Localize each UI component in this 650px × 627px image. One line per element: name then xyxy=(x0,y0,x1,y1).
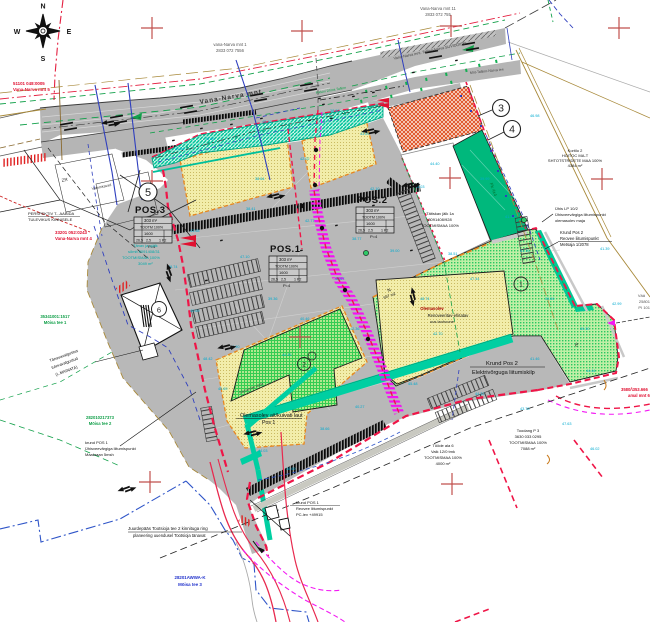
svg-text:S: S xyxy=(41,56,46,63)
svg-text:E: E xyxy=(67,29,72,36)
svg-text:TOOTM 100%: TOOTM 100% xyxy=(275,265,299,269)
svg-text:38.41: 38.41 xyxy=(246,207,256,211)
svg-text:4: 4 xyxy=(509,124,515,136)
svg-text:47.63: 47.63 xyxy=(562,422,572,426)
svg-text:2: 2 xyxy=(302,362,306,369)
svg-text:Olemasolev ait/kuivati laut: Olemasolev ait/kuivati laut xyxy=(240,413,303,419)
svg-text:44.40: 44.40 xyxy=(430,162,440,166)
svg-text:2833 072 755: 2833 072 755 xyxy=(425,12,451,17)
svg-text:40.27: 40.27 xyxy=(355,405,365,409)
svg-text:Vana-Narva mnt 11: Vana-Narva mnt 11 xyxy=(420,6,456,11)
svg-text:Elektrivõrguga liitumiskilp: Elektrivõrguga liitumiskilp xyxy=(472,370,535,376)
svg-text:1600: 1600 xyxy=(366,221,376,226)
svg-text:TULEVIKUS KINNISELE: TULEVIKUS KINNISELE xyxy=(28,217,73,222)
svg-text:48.74: 48.74 xyxy=(420,297,430,301)
svg-text:amal mnt 6: amal mnt 6 xyxy=(628,393,650,398)
svg-text:Pos 1: Pos 1 xyxy=(262,420,275,426)
svg-text:Krund Pos 2: Krund Pos 2 xyxy=(486,361,518,367)
svg-text:2833 072 7556: 2833 072 7556 xyxy=(216,48,245,53)
svg-text:Reovee liitumispunkt: Reovee liitumispunkt xyxy=(560,236,599,241)
svg-text:8091408/928: 8091408/928 xyxy=(428,217,452,222)
svg-text:44.03: 44.03 xyxy=(258,449,268,453)
svg-text:41.56: 41.56 xyxy=(175,147,185,151)
svg-text:planeering uuendusel Tootsioja: planeering uuendusel Tootsioja tänavat xyxy=(133,533,206,538)
svg-text:TOOTMISMAA 100%: TOOTMISMAA 100% xyxy=(421,223,459,228)
svg-text:51101 048:0005: 51101 048:0005 xyxy=(13,81,45,86)
svg-text:TOOTMISMAA 100%: TOOTMISMAA 100% xyxy=(509,440,547,445)
svg-text:1 P2: 1 P2 xyxy=(294,278,301,282)
svg-text:39.59: 39.59 xyxy=(545,297,555,301)
svg-text:2,5: 2,5 xyxy=(146,239,151,243)
svg-text:26,5: 26,5 xyxy=(136,239,143,243)
svg-text:38.51: 38.51 xyxy=(448,252,458,256)
svg-text:3: 3 xyxy=(498,103,504,115)
svg-text:45.16: 45.16 xyxy=(262,120,272,124)
svg-text:38.80: 38.80 xyxy=(330,109,340,113)
svg-text:45.69: 45.69 xyxy=(218,387,228,391)
svg-text:3630 033 0295: 3630 033 0295 xyxy=(515,434,542,439)
svg-text:47.44: 47.44 xyxy=(470,277,480,281)
svg-text:26,5: 26,5 xyxy=(271,278,278,282)
svg-text:26,5: 26,5 xyxy=(358,229,365,233)
svg-text:PC-lev +49915: PC-lev +49915 xyxy=(296,512,323,517)
svg-text:45.48: 45.48 xyxy=(408,382,418,386)
svg-text:Ühisveevärgiga liitumispunkt: Ühisveevärgiga liitumispunkt xyxy=(85,446,137,451)
svg-text:olemasolev maja: olemasolev maja xyxy=(555,218,586,223)
svg-text:39.99: 39.99 xyxy=(480,177,490,181)
svg-text:282010217373: 282010217373 xyxy=(86,415,115,420)
svg-text:5: 5 xyxy=(145,187,151,199)
svg-text:TOOTMISMAA 100%: TOOTMISMAA 100% xyxy=(424,455,462,460)
svg-text:Juurdepääs Tootsioja tee 2 kin: Juurdepääs Tootsioja tee 2 kinnituga rin… xyxy=(128,526,208,531)
svg-text:1: 1 xyxy=(519,282,523,289)
svg-text:43.58: 43.58 xyxy=(190,229,200,233)
svg-text:N: N xyxy=(40,4,45,11)
svg-text:3580/\353.666: 3580/\353.666 xyxy=(621,387,648,392)
svg-text:25801: 25801 xyxy=(639,299,650,304)
svg-text:uus laohoone: uus laohoone xyxy=(430,319,455,324)
svg-text:Möisa tee 2: Möisa tee 2 xyxy=(89,421,112,426)
svg-text:42.99: 42.99 xyxy=(612,302,622,306)
svg-text:Krund Pos 2: Krund Pos 2 xyxy=(560,230,584,235)
svg-text:6: 6 xyxy=(157,305,161,314)
svg-text:38.66: 38.66 xyxy=(320,427,330,431)
svg-text:47.10: 47.10 xyxy=(240,255,250,259)
svg-text:4384 m²: 4384 m² xyxy=(568,163,583,168)
svg-text:42.36: 42.36 xyxy=(350,327,360,331)
svg-text:Tööde ala 6: Tööde ala 6 xyxy=(432,443,454,448)
svg-text:PI 101: PI 101 xyxy=(638,305,650,310)
svg-text:TOOTM 100%: TOOTM 100% xyxy=(362,216,386,220)
svg-text:Maakraan 5msh: Maakraan 5msh xyxy=(85,452,114,457)
svg-text:40.69: 40.69 xyxy=(190,309,200,313)
svg-text:42.10: 42.10 xyxy=(370,187,380,191)
svg-text:Toodang P 3: Toodang P 3 xyxy=(517,428,540,433)
svg-text:Ühis LP 10/2: Ühis LP 10/2 xyxy=(555,206,579,211)
svg-text:44.44: 44.44 xyxy=(586,369,596,373)
svg-text:1600: 1600 xyxy=(144,231,154,236)
svg-text:P=4: P=4 xyxy=(283,283,291,288)
svg-text:vana-Narva mnt 1: vana-Narva mnt 1 xyxy=(213,42,247,47)
svg-text:POS.1: POS.1 xyxy=(270,244,301,255)
svg-text:39.30: 39.30 xyxy=(580,327,590,331)
svg-text:42.67: 42.67 xyxy=(335,277,345,281)
svg-text:Vana-Narva mnt 5: Vana-Narva mnt 5 xyxy=(13,87,50,92)
svg-text:35341001:1517: 35341001:1517 xyxy=(40,314,70,319)
svg-text:krund POS 1: krund POS 1 xyxy=(296,500,320,505)
svg-text:PERSPEKTIV T...AABIDA: PERSPEKTIV T...AABIDA xyxy=(28,211,74,216)
svg-text:39.36: 39.36 xyxy=(268,297,278,301)
svg-text:W: W xyxy=(14,29,21,36)
svg-text:Möisa tee 1: Möisa tee 1 xyxy=(44,320,67,325)
svg-text:42.77: 42.77 xyxy=(305,219,315,223)
svg-text:38.77: 38.77 xyxy=(352,237,362,241)
svg-text:krund POS 1: krund POS 1 xyxy=(85,440,109,445)
svg-text:sõmit 8091408/31: sõmit 8091408/31 xyxy=(128,249,161,254)
svg-text:41.46: 41.46 xyxy=(530,357,540,361)
svg-text:43.89: 43.89 xyxy=(360,132,370,136)
svg-text:39.66: 39.66 xyxy=(205,137,215,141)
svg-text:Metsaja 1/2078: Metsaja 1/2078 xyxy=(560,242,589,247)
svg-text:Tänav ja pjälk: Tänav ja pjälk xyxy=(133,243,158,248)
svg-text:P=4: P=4 xyxy=(370,234,378,239)
svg-text:Vaik 12/0 tmk: Vaik 12/0 tmk xyxy=(431,449,455,454)
svg-text:Renoveeritav-ehitatav: Renoveeritav-ehitatav xyxy=(428,313,470,318)
svg-text:Tätiskav jälk 1a: Tätiskav jälk 1a xyxy=(426,211,454,216)
svg-text:38.69: 38.69 xyxy=(286,467,296,471)
svg-text:48.42: 48.42 xyxy=(203,357,213,361)
svg-text:42.02: 42.02 xyxy=(300,157,310,161)
svg-text:7088 m²: 7088 m² xyxy=(521,446,536,451)
svg-text:POS.2: POS.2 xyxy=(357,195,388,206)
svg-text:40.46: 40.46 xyxy=(300,317,310,321)
svg-text:1 P2: 1 P2 xyxy=(381,229,388,233)
svg-text:Reovee liitumispunkt: Reovee liitumispunkt xyxy=(296,506,334,511)
svg-text:TOOTMISMAA 100%: TOOTMISMAA 100% xyxy=(122,255,160,260)
svg-text:Vää: Vää xyxy=(638,293,646,298)
svg-text:2,5: 2,5 xyxy=(281,278,286,282)
svg-text:44.32: 44.32 xyxy=(475,392,485,396)
svg-text:28201AWWA-K: 28201AWWA-K xyxy=(175,575,207,580)
svg-text:TOOTM 100%: TOOTM 100% xyxy=(140,226,164,230)
svg-text:1600: 1600 xyxy=(279,270,289,275)
svg-text:303 m²: 303 m² xyxy=(366,208,380,213)
svg-text:39.00: 39.00 xyxy=(390,249,400,253)
svg-text:43.78: 43.78 xyxy=(520,407,530,411)
svg-text:41.39: 41.39 xyxy=(600,247,610,251)
svg-text:Vana-Narva mnt 4: Vana-Narva mnt 4 xyxy=(55,236,92,241)
svg-text:33201 052:0243: 33201 052:0243 xyxy=(55,230,88,235)
svg-text:Möisa tee 3: Möisa tee 3 xyxy=(178,582,202,587)
svg-text:44.35: 44.35 xyxy=(282,353,292,357)
svg-text:46.98: 46.98 xyxy=(530,114,540,118)
svg-text:2,5: 2,5 xyxy=(368,229,373,233)
svg-text:Olemasolev: Olemasolev xyxy=(420,306,444,311)
svg-text:41.19: 41.19 xyxy=(520,249,530,253)
svg-text:46.02: 46.02 xyxy=(590,447,600,451)
svg-text:42.70: 42.70 xyxy=(433,332,443,336)
svg-text:38.64: 38.64 xyxy=(255,177,265,181)
svg-text:Ühisveevärgiga liitumispunkt: Ühisveevärgiga liitumispunkt xyxy=(555,212,607,217)
svg-text:303 m²: 303 m² xyxy=(279,257,293,262)
svg-text:3049 m²: 3049 m² xyxy=(138,261,153,266)
svg-text:POS.3: POS.3 xyxy=(135,205,166,216)
svg-text:4000 m²: 4000 m² xyxy=(436,461,451,466)
svg-text:1 P2: 1 P2 xyxy=(159,239,166,243)
svg-text:303 m²: 303 m² xyxy=(144,218,158,223)
